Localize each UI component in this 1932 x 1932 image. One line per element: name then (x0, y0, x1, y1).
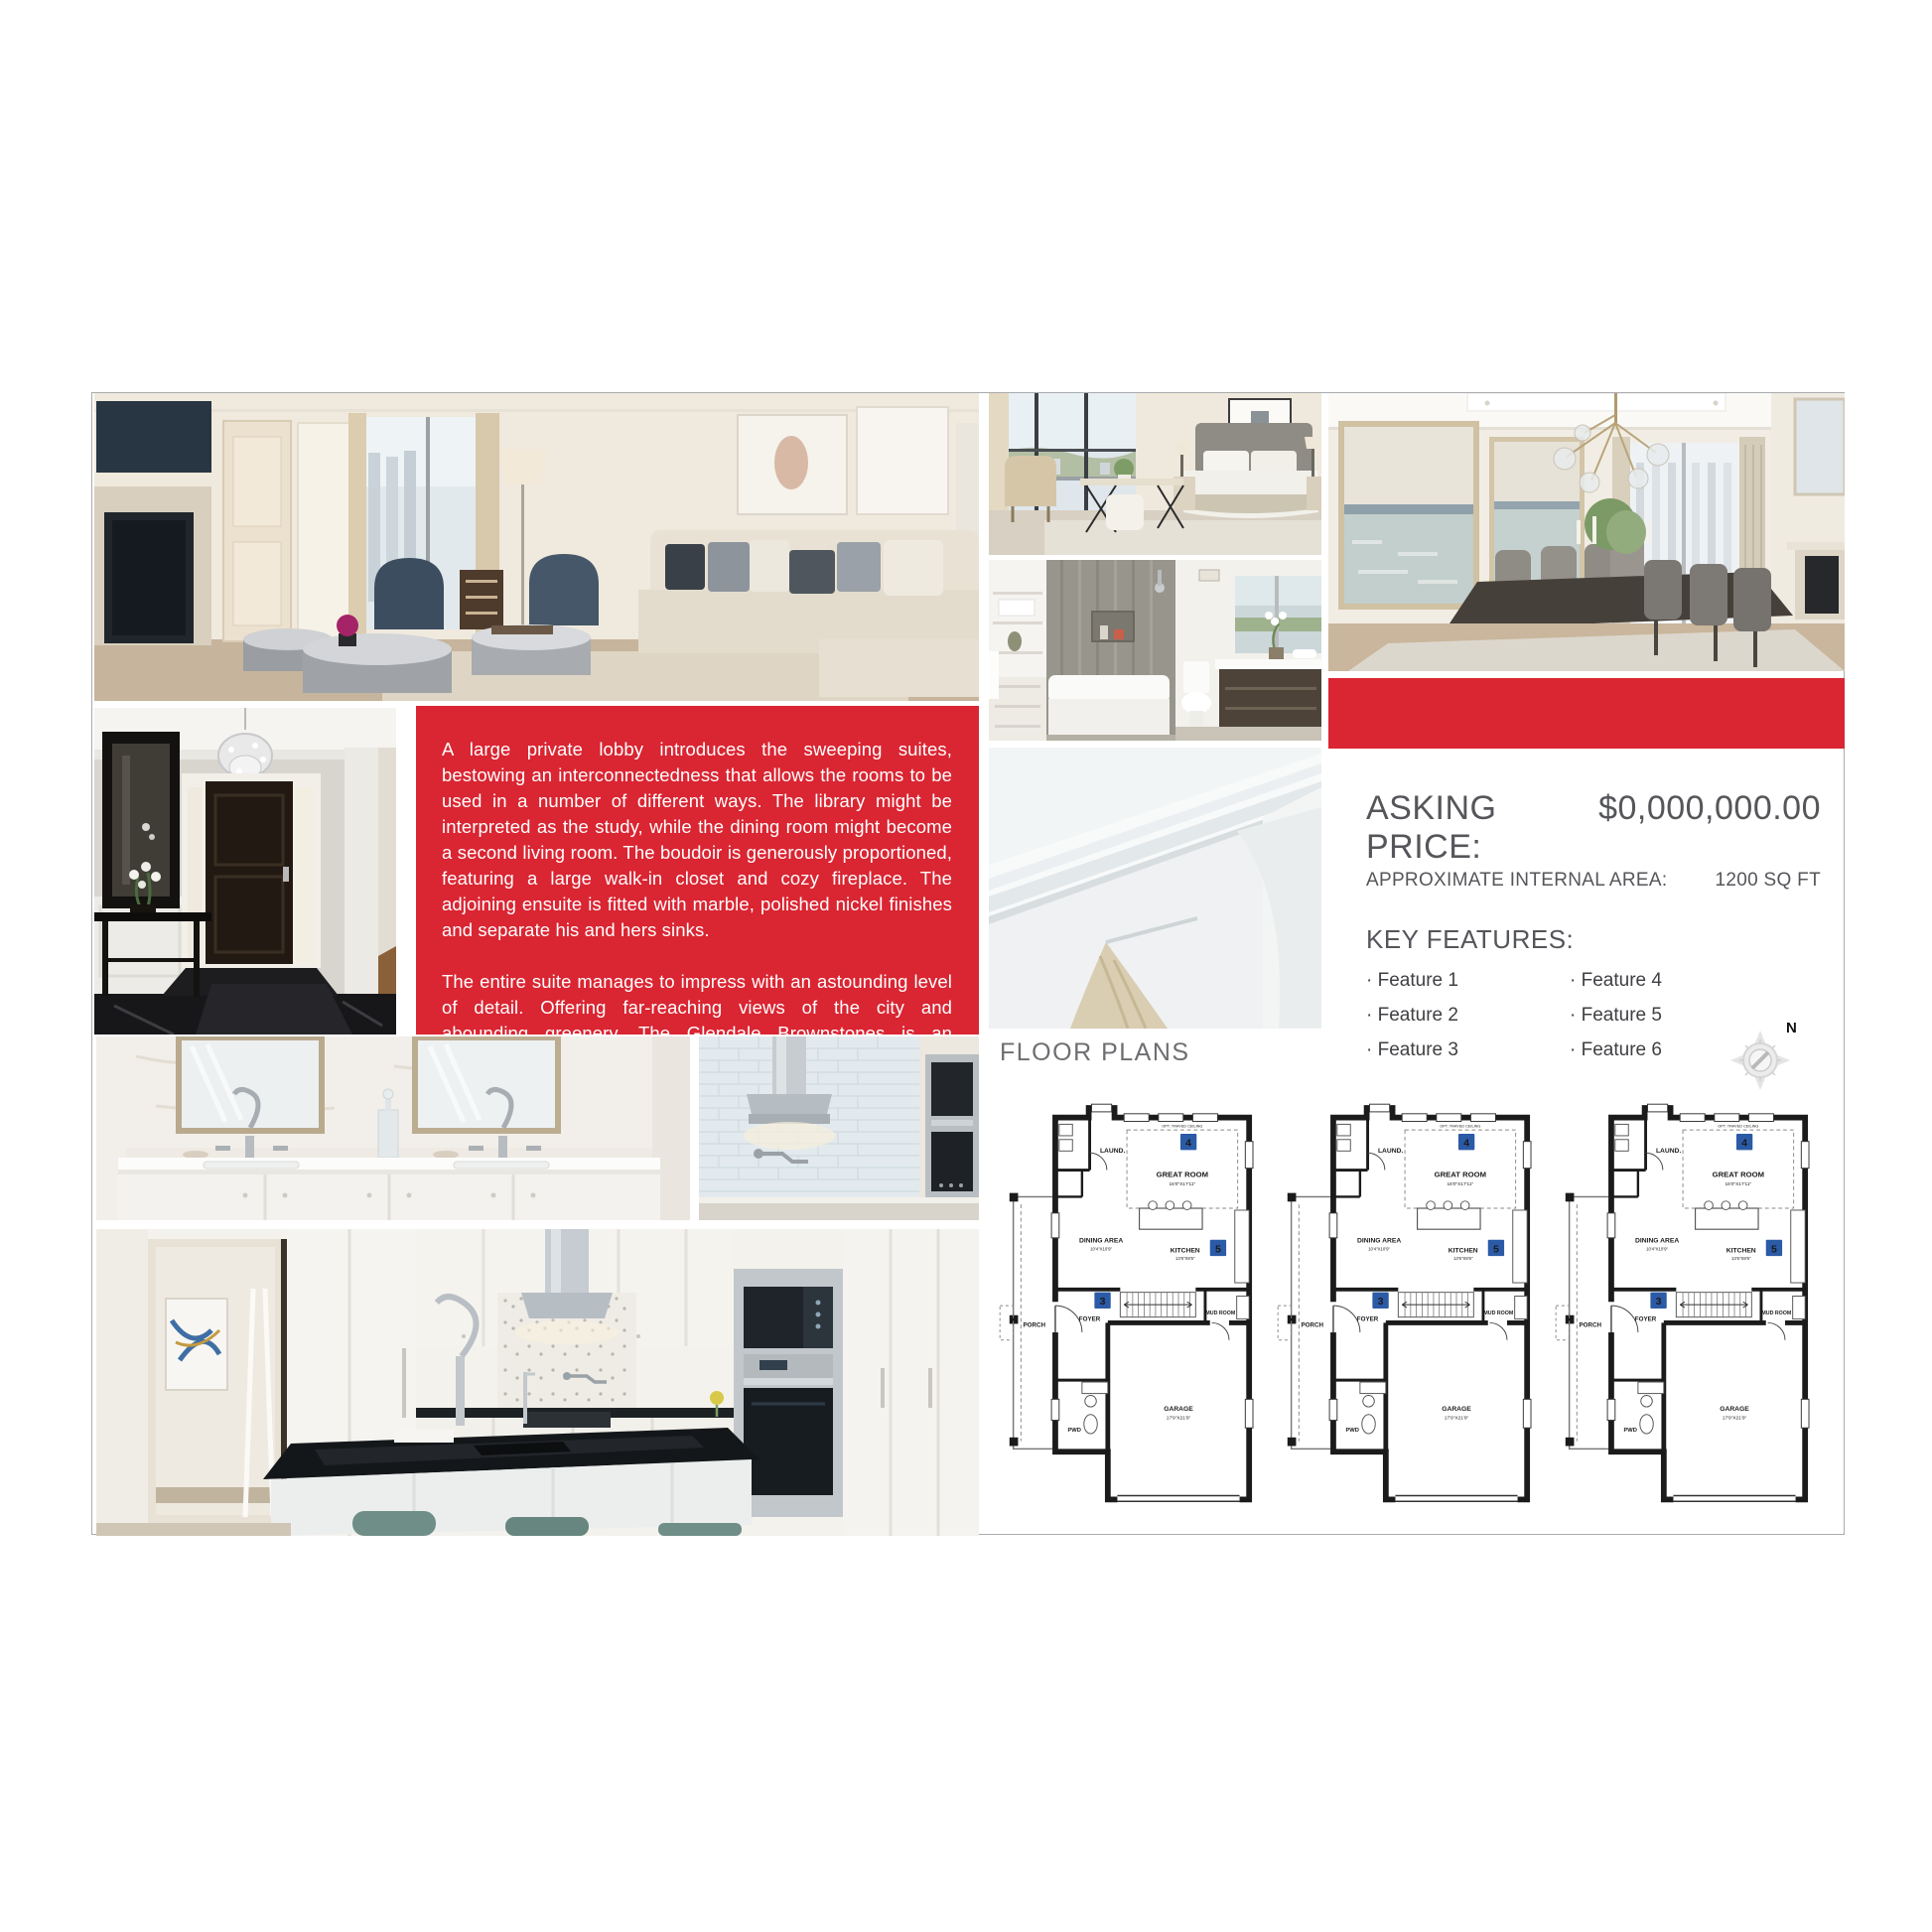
svg-text:FOYER: FOYER (1635, 1316, 1657, 1323)
svg-text:17'9"X21'9": 17'9"X21'9" (1445, 1416, 1469, 1422)
floor-plan-2: 4 5 3 LAUND. OPT. TRAYED CEILING GREAT R… (1276, 1084, 1563, 1533)
photo-foyer-illustration (94, 708, 396, 1035)
key-features-label: KEY FEATURES: (1366, 924, 1821, 955)
svg-text:KITCHEN: KITCHEN (1171, 1247, 1200, 1254)
svg-text:5: 5 (1771, 1243, 1777, 1255)
svg-text:16'0"X17'11": 16'0"X17'11" (1725, 1181, 1751, 1187)
svg-text:4: 4 (1741, 1138, 1747, 1150)
svg-text:OPT. TRAYED CEILING: OPT. TRAYED CEILING (1718, 1124, 1758, 1128)
svg-text:MUD ROOM: MUD ROOM (1761, 1311, 1791, 1316)
svg-text:PORCH: PORCH (1024, 1321, 1046, 1328)
description-paragraph-1: A large private lobby introduces the swe… (442, 737, 952, 943)
photo-living-room-illustration (94, 393, 979, 701)
svg-text:GARAGE: GARAGE (1164, 1406, 1193, 1413)
photo-vanity (96, 1036, 690, 1220)
svg-text:10'4"X10'9": 10'4"X10'9" (1090, 1246, 1112, 1251)
photo-living-room (94, 393, 979, 701)
svg-text:KITCHEN: KITCHEN (1726, 1247, 1756, 1254)
svg-text:5: 5 (1215, 1243, 1221, 1255)
svg-text:LAUND.: LAUND. (1656, 1148, 1682, 1155)
svg-text:OPT. TRAYED CEILING: OPT. TRAYED CEILING (1162, 1124, 1202, 1128)
feature-item: · Feature 3 (1366, 1039, 1570, 1061)
svg-text:PWD: PWD (1345, 1428, 1358, 1434)
photo-foyer (94, 708, 396, 1035)
svg-text:GREAT ROOM: GREAT ROOM (1157, 1170, 1208, 1178)
svg-text:17'9"X21'9": 17'9"X21'9" (1723, 1416, 1747, 1422)
feature-item: · Feature 1 (1366, 970, 1570, 992)
svg-text:GARAGE: GARAGE (1720, 1406, 1749, 1413)
floor-plan-drawing: 4 5 3 LAUND. OPT. TRAYED CEILING GREAT R… (998, 1084, 1285, 1533)
description-panel: A large private lobby introduces the swe… (416, 706, 979, 1035)
svg-text:DINING AREA: DINING AREA (1079, 1238, 1123, 1245)
svg-text:N: N (1786, 1020, 1797, 1036)
svg-text:LAUND.: LAUND. (1100, 1148, 1126, 1155)
area-label: APPROXIMATE INTERNAL AREA: (1366, 870, 1667, 892)
asking-price-value: $0,000,000.00 (1598, 789, 1821, 828)
svg-text:16'0"X17'11": 16'0"X17'11" (1447, 1181, 1473, 1187)
svg-text:MUD ROOM: MUD ROOM (1205, 1311, 1235, 1316)
svg-text:PORCH: PORCH (1302, 1321, 1324, 1328)
svg-text:MUD ROOM: MUD ROOM (1483, 1311, 1513, 1316)
svg-text:10'4"X10'9": 10'4"X10'9" (1368, 1246, 1390, 1251)
photo-ceiling-illustration (989, 748, 1321, 1029)
svg-text:KITCHEN: KITCHEN (1449, 1247, 1478, 1254)
svg-text:3: 3 (1378, 1296, 1384, 1308)
floor-plan-3: 4 5 3 LAUND. OPT. TRAYED CEILING GREAT R… (1554, 1084, 1841, 1533)
svg-text:DINING AREA: DINING AREA (1357, 1238, 1401, 1245)
svg-text:GREAT ROOM: GREAT ROOM (1435, 1170, 1486, 1178)
floor-plan-drawing: 4 5 3 LAUND. OPT. TRAYED CEILING GREAT R… (1554, 1084, 1841, 1533)
photo-bedroom-illustration (989, 393, 1321, 555)
asking-price-row: ASKING PRICE: $0,000,000.00 (1366, 789, 1821, 867)
photo-kitchen-hood (699, 1036, 979, 1220)
svg-text:PWD: PWD (1623, 1428, 1636, 1434)
floor-plan-1: 4 5 3 LAUND. OPT. TRAYED CEILING GREAT R… (998, 1084, 1285, 1533)
photo-dining-illustration (1328, 393, 1845, 671)
photo-bathroom-illustration (989, 560, 1321, 741)
svg-text:GREAT ROOM: GREAT ROOM (1713, 1170, 1764, 1178)
svg-text:OPT. TRAYED CEILING: OPT. TRAYED CEILING (1440, 1124, 1480, 1128)
svg-text:PWD: PWD (1067, 1428, 1080, 1434)
svg-text:DINING AREA: DINING AREA (1635, 1238, 1679, 1245)
photo-bathroom (989, 560, 1321, 741)
photo-hood-illustration (699, 1036, 979, 1220)
svg-text:16'0"X17'11": 16'0"X17'11" (1169, 1181, 1195, 1187)
svg-text:LAUND.: LAUND. (1378, 1148, 1404, 1155)
svg-text:3: 3 (1656, 1296, 1662, 1308)
svg-text:4: 4 (1463, 1138, 1469, 1150)
svg-text:13'6"X8'6": 13'6"X8'6" (1731, 1256, 1751, 1261)
feature-item: · Feature 2 (1366, 1005, 1570, 1027)
red-banner (1328, 678, 1845, 749)
svg-text:3: 3 (1100, 1296, 1106, 1308)
svg-text:GARAGE: GARAGE (1442, 1406, 1471, 1413)
photo-ceiling-detail (989, 748, 1321, 1029)
internal-area-row: APPROXIMATE INTERNAL AREA: 1200 SQ FT (1366, 870, 1821, 892)
svg-text:10'4"X10'9": 10'4"X10'9" (1646, 1246, 1668, 1251)
svg-text:PORCH: PORCH (1580, 1321, 1602, 1328)
svg-text:13'6"X8'6": 13'6"X8'6" (1453, 1256, 1473, 1261)
brochure-canvas: A large private lobby introduces the swe… (0, 0, 1932, 1932)
asking-price-label: ASKING PRICE: (1366, 789, 1598, 867)
photo-vanity-illustration (96, 1036, 690, 1220)
svg-text:4: 4 (1185, 1138, 1191, 1150)
photo-bedroom (989, 393, 1321, 555)
brochure-page: A large private lobby introduces the swe… (91, 392, 1845, 1535)
svg-text:5: 5 (1493, 1243, 1499, 1255)
feature-item: · Feature 4 (1570, 970, 1821, 992)
photo-dining-room (1328, 393, 1845, 671)
svg-text:FOYER: FOYER (1357, 1316, 1379, 1323)
floor-plans-heading: FLOOR PLANS (1000, 1038, 1190, 1067)
photo-kitchen-illustration (96, 1229, 979, 1536)
floor-plan-drawing: 4 5 3 LAUND. OPT. TRAYED CEILING GREAT R… (1276, 1084, 1563, 1533)
area-value: 1200 SQ FT (1716, 870, 1822, 892)
svg-text:17'9"X21'9": 17'9"X21'9" (1167, 1416, 1191, 1422)
photo-kitchen (96, 1229, 979, 1536)
svg-text:13'6"X8'6": 13'6"X8'6" (1175, 1256, 1195, 1261)
svg-text:FOYER: FOYER (1079, 1316, 1101, 1323)
